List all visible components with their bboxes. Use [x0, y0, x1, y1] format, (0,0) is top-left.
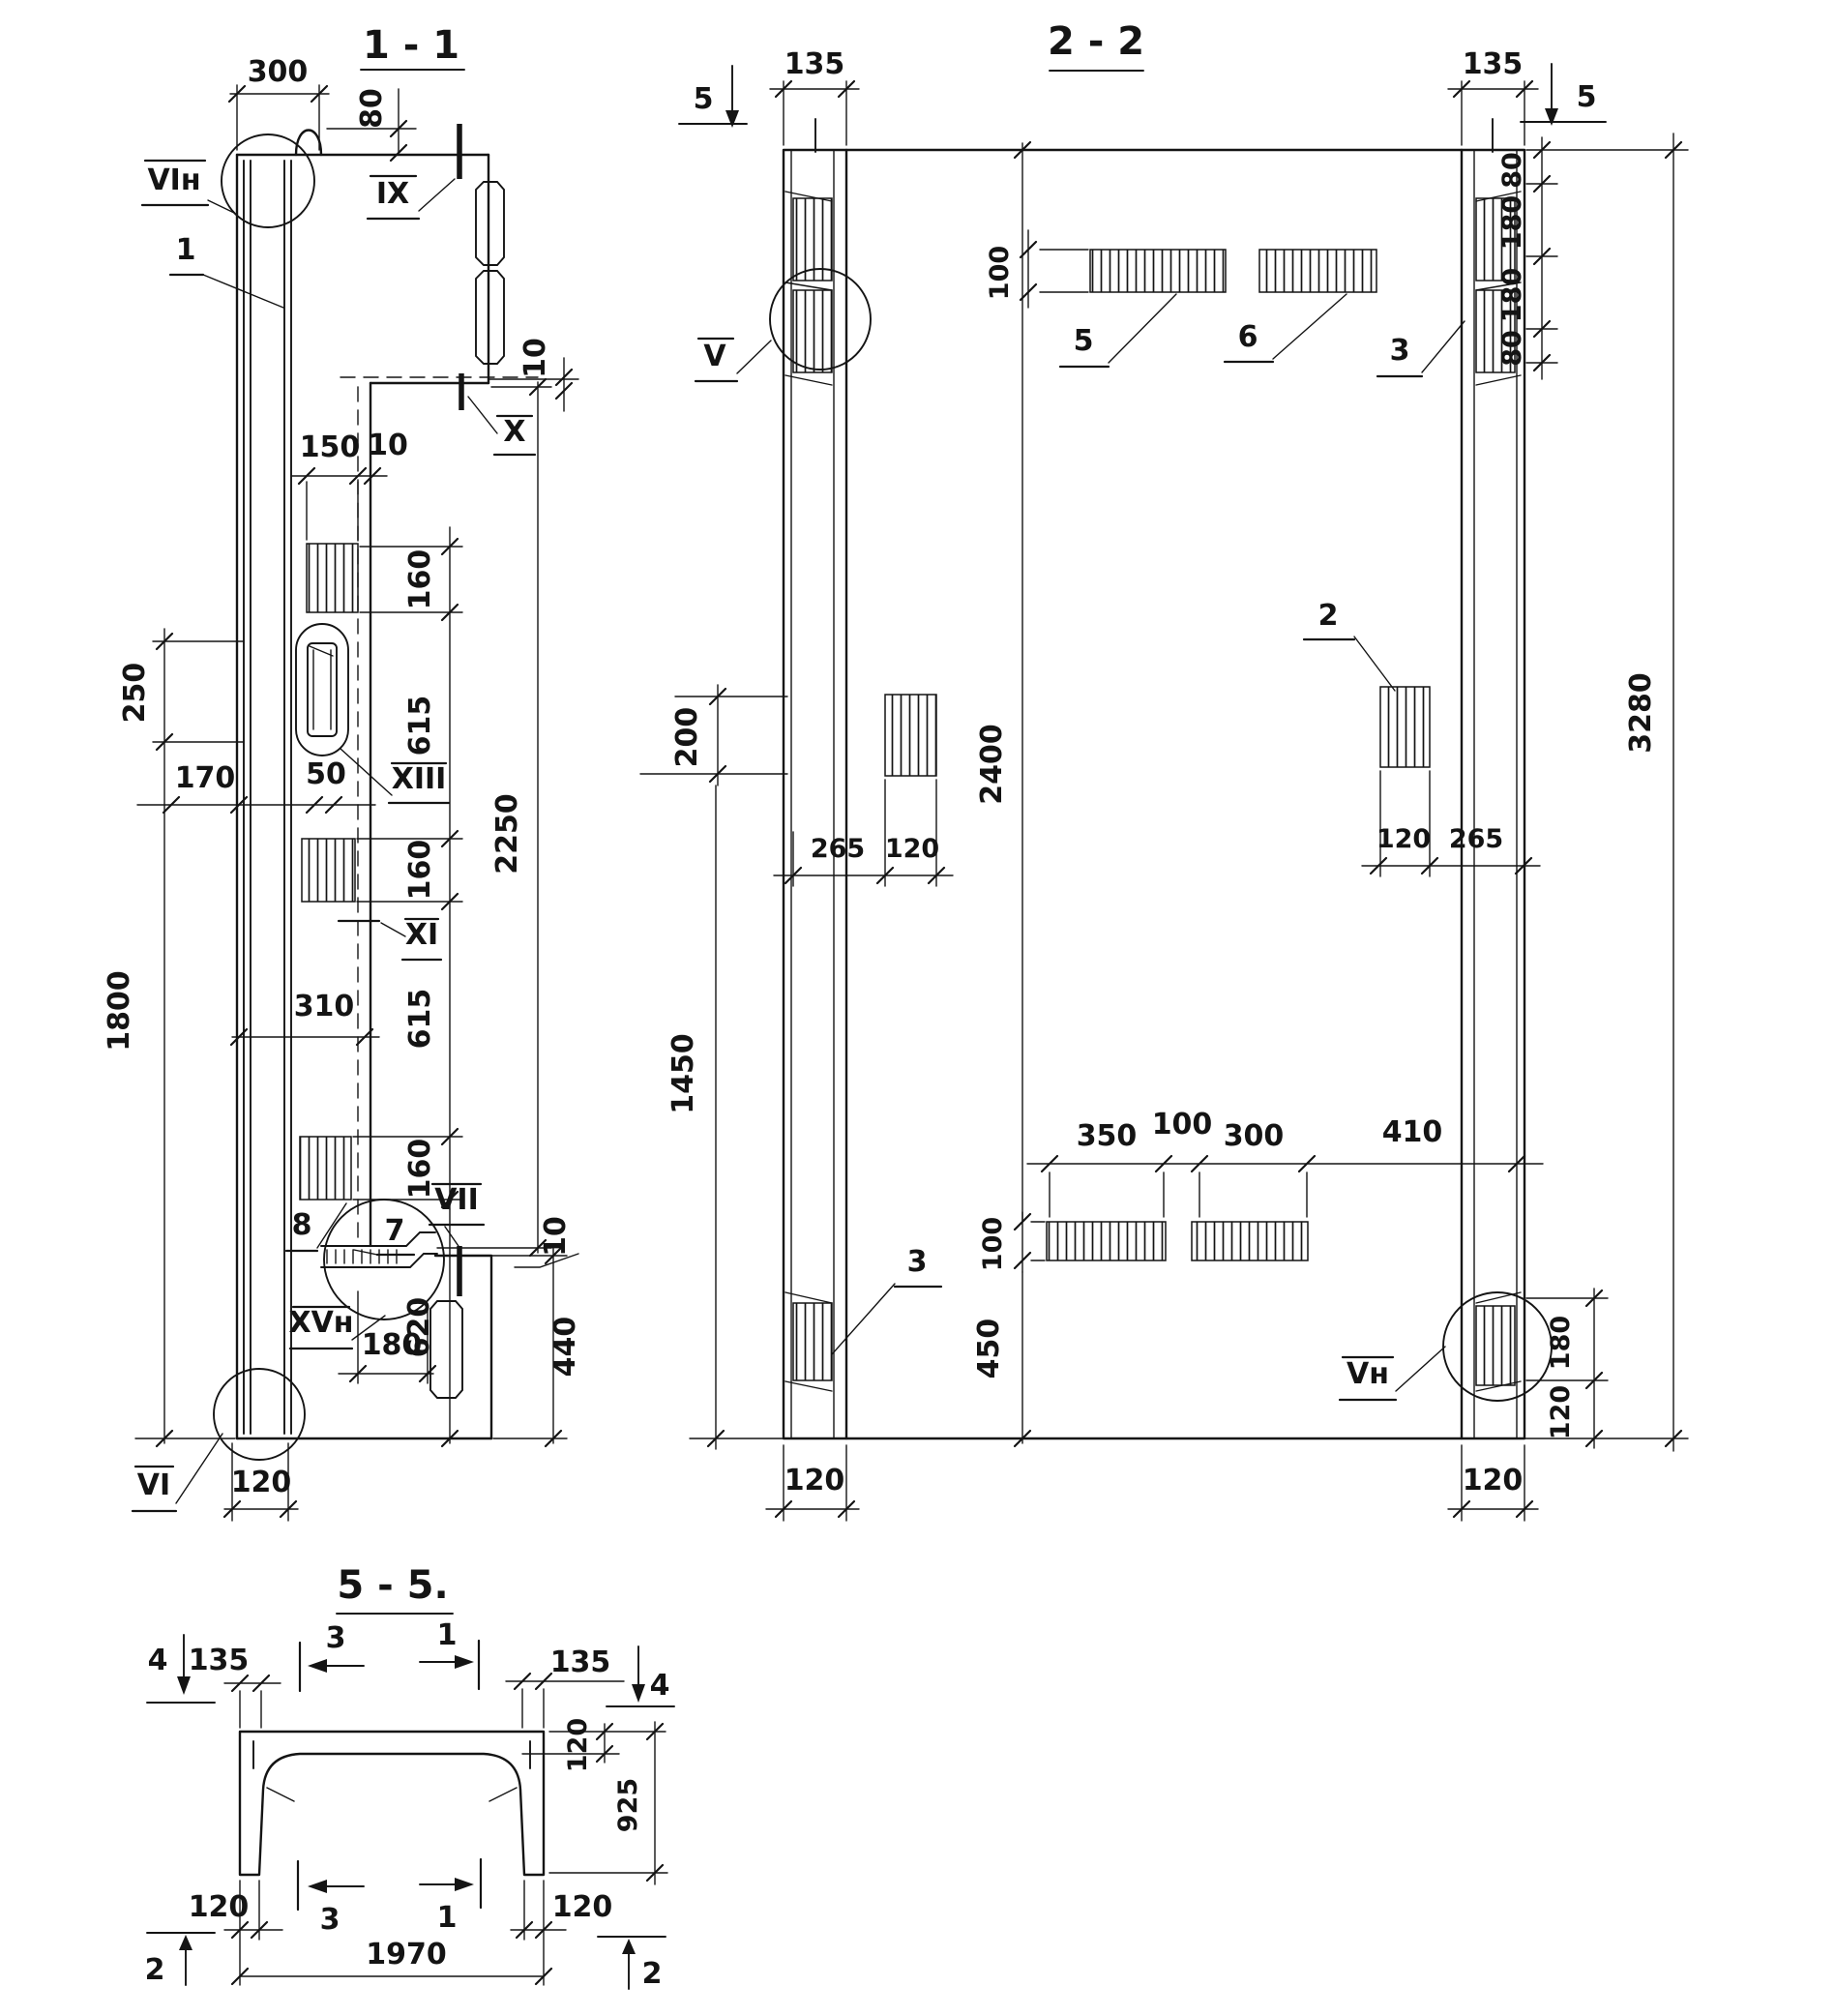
label-ix: IX — [376, 177, 409, 211]
marker-2: 2 — [642, 1957, 663, 1991]
dim-160: 160 — [403, 840, 437, 901]
weld-plate — [307, 544, 358, 612]
dim-265: 265 — [811, 834, 865, 864]
dimensions: 135 135 120 925 120 120 1970 — [189, 1644, 667, 1985]
dim-615: 615 — [403, 989, 437, 1050]
lifting-loop — [296, 131, 321, 156]
section-marker-1-bottom: 1 — [420, 1859, 481, 1935]
dim-120: 120 — [784, 1464, 845, 1497]
label-xv-n: XVн — [288, 1306, 353, 1340]
weld-plate — [302, 839, 355, 902]
dim-300: 300 — [248, 55, 309, 89]
dim-250: 250 — [118, 663, 152, 724]
dim-80: 80 — [1497, 330, 1527, 367]
dim-80: 80 — [355, 88, 389, 129]
dim-10-edge: 10 — [368, 429, 408, 462]
arrow-down-icon — [177, 1676, 191, 1695]
section-marker-3-bottom: 3 — [298, 1861, 364, 1937]
label-2: 2 — [1318, 599, 1339, 633]
label-6: 6 — [1238, 320, 1258, 354]
section-marker-5-left: 5 — [679, 66, 747, 128]
hatch-areas — [300, 544, 358, 1200]
label-7: 7 — [385, 1214, 405, 1248]
marker-4: 4 — [650, 1669, 670, 1703]
dim-300: 300 — [1224, 1119, 1285, 1153]
dim-120: 120 — [552, 1890, 613, 1924]
arrow-left-icon — [308, 1659, 327, 1673]
dim-1970: 1970 — [366, 1938, 447, 1972]
dim-160: 160 — [403, 1139, 437, 1200]
arrow-right-icon — [455, 1655, 474, 1669]
arrow-down-icon — [1545, 108, 1558, 126]
dim-1450: 1450 — [666, 1033, 700, 1114]
label-vi: VI — [137, 1468, 170, 1502]
dim-620: 620 — [402, 1297, 436, 1358]
panel-outline — [690, 119, 1688, 1438]
dim-410: 410 — [1382, 1115, 1443, 1149]
section-2-2: 2 - 2 — [640, 19, 1688, 1521]
slot-detail — [296, 624, 348, 756]
dim-440: 440 — [548, 1317, 582, 1378]
dim-80: 80 — [1497, 152, 1527, 189]
dim-180: 180 — [1497, 268, 1527, 322]
rebar-bottom — [1192, 1222, 1308, 1260]
dim-615: 615 — [403, 696, 437, 756]
dim-1800: 1800 — [103, 970, 136, 1052]
dim-100: 100 — [1152, 1108, 1213, 1141]
dim-3280: 3280 — [1624, 672, 1658, 754]
section-marker-1-top: 1 — [420, 1618, 479, 1689]
label-vi-n: VIн — [147, 163, 200, 197]
section-marker-2-right: 2 — [598, 1937, 666, 1991]
dim-120: 120 — [1376, 824, 1431, 854]
anchor-zone — [793, 1303, 832, 1380]
label-3: 3 — [907, 1245, 928, 1279]
section-1-1: 1 - 1 — [103, 23, 582, 1521]
detail-labels: VIн IX 1 X XIII XI 8 7 VII XVн VI — [133, 161, 535, 1511]
marker-1: 1 — [437, 1901, 458, 1935]
dim-50: 50 — [306, 757, 346, 791]
anchor-zone — [793, 198, 832, 281]
dim-2400: 2400 — [975, 724, 1009, 805]
marker-5: 5 — [1577, 80, 1597, 114]
label-xiii: XIII — [392, 762, 447, 796]
embed-plate — [885, 695, 936, 776]
label-3: 3 — [1390, 334, 1410, 368]
label-xi: XI — [405, 918, 438, 952]
shear-key-tooth — [476, 271, 504, 364]
channel-outline — [240, 1732, 544, 1875]
dim-265: 265 — [1449, 824, 1503, 854]
arrow-down-icon — [632, 1684, 645, 1703]
shear-key-tooth — [476, 182, 504, 265]
marker-2: 2 — [145, 1953, 165, 1987]
label-v: V — [703, 340, 726, 373]
arrow-down-icon — [725, 110, 739, 128]
dim-135: 135 — [784, 47, 845, 81]
label-1: 1 — [176, 233, 196, 267]
weld-plate — [300, 1137, 351, 1200]
dim-350: 350 — [1077, 1119, 1138, 1153]
dim-180: 180 — [1497, 195, 1527, 250]
section-title: 1 - 1 — [363, 23, 459, 68]
section-marker-3-top: 3 — [300, 1621, 364, 1691]
dim-310: 310 — [294, 990, 355, 1023]
blueprint-sheet: 1 - 1 — [0, 0, 1835, 2016]
dim-160: 160 — [403, 549, 437, 610]
rebar-5 — [1090, 250, 1226, 292]
dim-120: 120 — [563, 1718, 593, 1772]
section-title: 2 - 2 — [1048, 19, 1144, 64]
section-title: 5 - 5. — [337, 1563, 448, 1608]
section-marker-5-right: 5 — [1521, 64, 1606, 126]
dim-200: 200 — [670, 707, 704, 768]
dim-170: 170 — [175, 761, 236, 795]
dim-2250: 2250 — [490, 793, 524, 875]
blueprint-canvas: 1 - 1 — [0, 0, 1835, 2016]
arrow-up-icon — [179, 1935, 192, 1950]
dim-10-bracket: 10 — [539, 1216, 573, 1257]
marker-4: 4 — [148, 1644, 168, 1677]
section-marker-4-right: 4 — [607, 1646, 674, 1706]
label-v-n: Vн — [1347, 1357, 1389, 1391]
marker-3: 3 — [326, 1621, 346, 1655]
dim-100: 100 — [978, 1217, 1008, 1271]
dim-135: 135 — [1463, 47, 1524, 81]
marker-1: 1 — [437, 1618, 458, 1652]
rebar-bottom — [1047, 1222, 1166, 1260]
detail-circle-vi-n — [222, 134, 314, 227]
marker-3: 3 — [320, 1903, 340, 1937]
rebar-lines — [244, 161, 291, 1434]
dim-120: 120 — [1463, 1464, 1524, 1497]
label-5: 5 — [1074, 324, 1094, 358]
section-marker-2-left: 2 — [145, 1933, 215, 1987]
dim-450: 450 — [972, 1319, 1006, 1379]
rebar-6 — [1259, 250, 1376, 292]
dim-120: 120 — [231, 1466, 292, 1499]
dim-135: 135 — [550, 1645, 611, 1679]
arrow-right-icon — [455, 1878, 474, 1891]
embed-plate-2 — [1380, 687, 1430, 767]
dim-135: 135 — [189, 1644, 250, 1677]
marker-5: 5 — [694, 82, 714, 116]
dim-100: 100 — [985, 246, 1015, 300]
dim-925: 925 — [613, 1778, 643, 1832]
section-5-5: 5 - 5. 4 4 3 1 — [145, 1563, 674, 1991]
anchor-zone — [793, 290, 832, 372]
label-x: X — [503, 415, 525, 449]
anchor-zone — [1476, 1306, 1515, 1385]
label-8: 8 — [292, 1208, 312, 1242]
arrow-up-icon — [622, 1939, 636, 1954]
dim-180: 180 — [1546, 1316, 1576, 1370]
dim-10-step: 10 — [518, 338, 552, 378]
dim-120: 120 — [1546, 1385, 1576, 1439]
dim-150: 150 — [300, 430, 361, 464]
bracket-detail — [321, 1232, 437, 1267]
dim-120: 120 — [885, 834, 939, 864]
label-vii: VII — [434, 1183, 479, 1217]
arrow-left-icon — [308, 1880, 327, 1893]
